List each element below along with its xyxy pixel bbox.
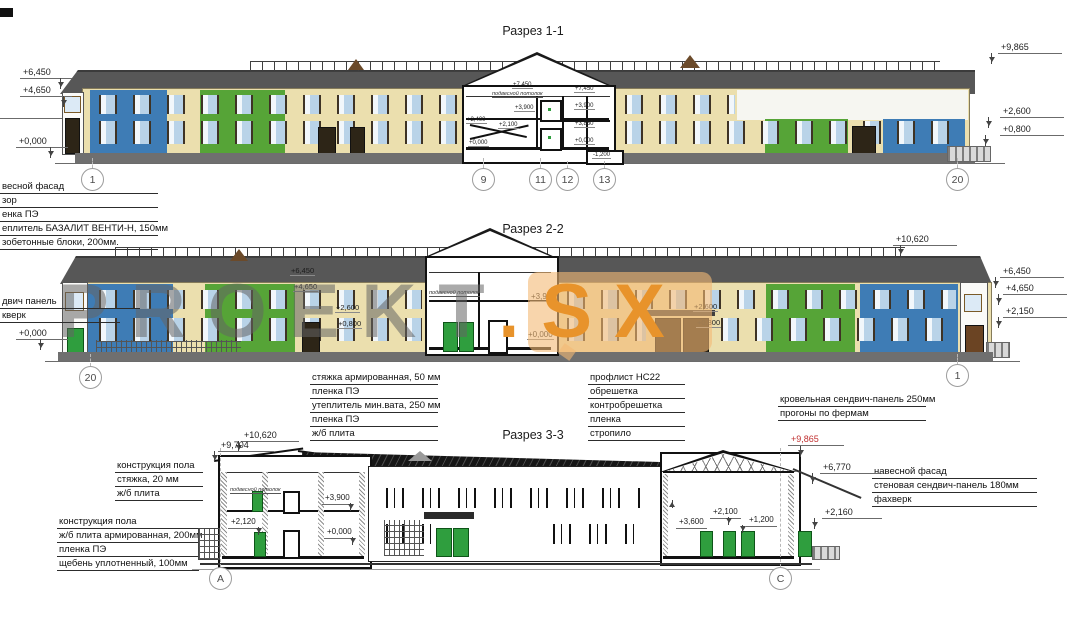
s2-wall-legend: двич панель кверк: [0, 296, 140, 324]
s3-ground-line-thin: [192, 569, 820, 570]
s1-elev-arrow: [988, 117, 989, 128]
s2-elev-mark: +6,450: [1000, 266, 1064, 278]
legend-line: навесной фасад: [872, 466, 1037, 479]
watermark-suffix: .SX: [498, 269, 687, 354]
s1-cut-mark: +0,000: [468, 140, 489, 147]
legend-line: фахверк: [872, 494, 1037, 507]
s1-cut-mark: +2,400: [466, 117, 487, 124]
legend-line: енка ПЭ: [0, 209, 158, 222]
legend-line: кровельная сендвич-панель 250мм: [778, 394, 926, 407]
s3-axis-leader: [220, 448, 221, 567]
legend-line: пленка ПЭ: [310, 414, 438, 427]
s1-axis-bubble: 9: [472, 168, 495, 191]
s3-elev-mark: +6,770: [820, 462, 880, 474]
s3-windows-upper: [378, 488, 640, 508]
s1-cut-mark: +7,450: [512, 82, 533, 89]
s3-entry-green-door: [453, 528, 469, 557]
s1-axis-leader: [957, 158, 958, 168]
s1-cut-mark: +0,000: [574, 138, 595, 145]
s2-right-end-window: [964, 294, 982, 312]
s1-shaft-wall: [536, 96, 538, 147]
s3-roof-legend: профлист НС22 обрешетка контробрешетка п…: [588, 372, 685, 442]
s1-windows-lower-left: [92, 121, 458, 144]
s3-elev-mark: +2,160: [822, 507, 882, 519]
s2-elev-mark: +4,650: [1003, 283, 1067, 295]
s1-windows-lower-right: [618, 121, 965, 144]
legend-line: стяжка армированная, 50 мм: [310, 372, 438, 385]
legend-line: зор: [0, 195, 158, 208]
s3-elev-arrow: [814, 518, 815, 529]
s1-cut-door-dot: [548, 108, 551, 111]
s3-hall-wall-hatch: [663, 474, 668, 556]
s3-mark-arrow: [672, 500, 673, 508]
s3-ceiling-label: подвесной потолок: [230, 487, 281, 494]
s3-axis-leader: [780, 448, 781, 567]
s3-left-ceiling-line: [222, 472, 364, 473]
s3-hall-green-door: [798, 531, 812, 557]
s1-cut-mark: +3,900: [574, 103, 595, 110]
legend-line: ж/б плита: [310, 428, 438, 441]
s1-windows-upper-mid: [618, 95, 735, 114]
s2-elev-arrow: [998, 294, 999, 305]
s3-cut-door: [283, 491, 300, 514]
s1-axis-leader: [567, 161, 568, 168]
legend-line: ж/б плита: [115, 488, 203, 501]
s3-mark-arrow: [728, 517, 729, 525]
s1-axis-bubble: 11: [529, 168, 552, 191]
s1-wall-legend: весной фасад зор енка ПЭ еплитель БАЗАЛИ…: [0, 181, 158, 251]
s2-axis-leader: [90, 354, 91, 366]
legend-line: двич панель: [0, 296, 140, 309]
s3-partition-hatch: [318, 472, 324, 556]
s3-left-wall-hatch: [221, 472, 227, 556]
s3-right-wall-hatch: [359, 472, 365, 556]
s1-axis-leader: [540, 158, 541, 168]
s3-hall-green-door: [741, 531, 755, 557]
legend-line: обрешетка: [588, 386, 685, 399]
s3-top-arrow: [214, 451, 215, 462]
watermark: PROEKT.SX: [58, 281, 687, 343]
s1-axis-leader: [483, 158, 484, 168]
s1-cut-door-dot: [548, 136, 551, 139]
s1-white-band-right: [737, 90, 968, 120]
s1-windows-upper-left: [92, 95, 458, 114]
s3-roof-panel-legend: кровельная сендвич-панель 250мм прогоны …: [778, 394, 926, 422]
corner-mark: [0, 8, 13, 17]
legend-line: конструкция пола: [57, 516, 199, 529]
s1-left-end-window: [64, 96, 81, 113]
s1-elev-arrow: [50, 147, 51, 158]
drawing-sheet: Разрез 1-1 подвесной потолок +7,450 +3,9…: [0, 0, 1073, 617]
s1-axis-leader: [92, 158, 93, 168]
s1-elev-arrow: [985, 135, 986, 146]
legend-line: стропило: [588, 428, 685, 441]
s3-roof-vent-icon: [408, 451, 432, 461]
s2-elev-arrow: [998, 317, 999, 328]
s1-cut-door: [540, 128, 562, 151]
legend-line: еплитель БАЗАЛИТ ВЕНТИ-Н, 150мм: [0, 223, 158, 236]
s1-exterior-stair: [947, 146, 991, 162]
s1-entry-door-right: [852, 126, 876, 155]
s2-axis-leader: [957, 354, 958, 364]
s1-entry-door: [318, 127, 336, 155]
s3-hall-green-door: [700, 531, 713, 557]
s2-elev-arrow: [995, 277, 996, 288]
s1-elev-mark: +6,450: [20, 67, 72, 79]
legend-line: утеплитель мин.вата, 250 мм: [310, 400, 438, 413]
s3-hall-wall-hatch: [788, 474, 794, 556]
s1-elev-mark: +2,600: [1000, 106, 1064, 118]
s3-mark-arrow: [350, 503, 351, 511]
s1-elev-arrow: [63, 96, 64, 107]
s2-elev-arrow: [40, 339, 41, 350]
s1-cut-mark: +3,900: [514, 105, 535, 112]
s3-ground-line: [200, 563, 812, 565]
legend-line: прогоны по фермам: [778, 408, 926, 421]
legend-line: пленка ПЭ: [57, 544, 199, 557]
legend-line: пленка: [588, 414, 685, 427]
s3-top-mark: +9,704: [218, 440, 274, 452]
legend-line: кверк: [0, 310, 120, 323]
s1-cut-ceiling-label: подвесной потолок: [492, 91, 543, 98]
s3-elev-arrow: [812, 473, 813, 484]
s2-axis-bubble: 1: [946, 364, 969, 387]
section3-title: Разрез 3-3: [468, 428, 598, 442]
s3-entry-green-door: [436, 528, 452, 557]
s1-cut-mark: +2,100: [498, 122, 519, 129]
s2-axis-bubble: 20: [79, 366, 102, 389]
s3-axis-bubble: С: [769, 567, 792, 590]
s1-roof-gable-icon: [680, 55, 700, 68]
s1-elev-mark: +0,800: [1000, 124, 1064, 136]
legend-line: весной фасад: [0, 181, 158, 194]
s3-elev-arrow: [800, 446, 801, 457]
legend-line: стеновая сендвич-панель 180мм: [872, 480, 1037, 493]
legend-line: щебень уплотненный, 100мм: [57, 558, 199, 571]
s1-elev-mark: +0,000: [16, 136, 68, 148]
s1-elev-mark: +9,865: [998, 42, 1062, 54]
legend-line: контробрешетка: [588, 400, 685, 413]
s3-wall-right-legend: навесной фасад стеновая сендвич-панель 1…: [872, 466, 1037, 508]
s1-axis-bubble: 13: [593, 168, 616, 191]
s3-mark-arrow: [258, 527, 259, 535]
s3-floor-upper-legend: конструкция пола стяжка, 20 мм ж/б плита: [115, 460, 203, 502]
s3-cut-door: [283, 530, 300, 559]
s3-hall-exterior-stair: [812, 546, 840, 560]
s1-cut-mark: +3,850: [574, 121, 595, 128]
s1-axis-leader: [604, 161, 605, 168]
s3-floor-ground-legend: конструкция пола ж/б плита армированная,…: [57, 516, 199, 572]
legend-line: стяжка, 20 мм: [115, 474, 203, 487]
s1-cut-mark-pit: -1,200: [592, 152, 611, 159]
s2-ground-line: [45, 361, 1020, 362]
s1-roof-gable-icon: [348, 59, 364, 70]
s1-elev-arrow: [991, 53, 992, 64]
s1-cut-door: [540, 100, 562, 122]
s3-axis-bubble: А: [209, 567, 232, 590]
s3-elev-mark-red: +9,865: [788, 434, 844, 446]
s2-roof-gable-icon: [230, 249, 248, 261]
legend-line: конструкция пола: [115, 460, 203, 473]
s2-right-end-door: [965, 325, 984, 354]
s3-hall-green-door: [723, 531, 736, 557]
s3-truss-bottom-chord: [663, 471, 794, 473]
s1-entry-door: [350, 127, 365, 155]
s3-mark-arrow: [352, 537, 353, 545]
s3-entry-railing: [384, 520, 424, 556]
s3-mark-arrow: [742, 525, 743, 533]
s1-axis-bubble: 12: [556, 168, 579, 191]
s2-elev-mark: +2,150: [1003, 306, 1067, 318]
legend-line: пленка ПЭ: [310, 386, 438, 399]
s3-roof-slab-legend: стяжка армированная, 50 мм пленка ПЭ уте…: [310, 372, 438, 442]
s3-green-door: [252, 491, 263, 512]
s1-elev-mark: +4,650: [20, 85, 72, 97]
s1-dim-line: [0, 118, 62, 119]
s1-cut-mark: +7,450: [574, 86, 595, 93]
s3-hall-mark: +3,600: [676, 517, 707, 529]
s3-entry-canopy: [424, 512, 474, 519]
s3-windows-lower-right: [545, 524, 640, 544]
legend-line: ж/б плита армированная, 200мм: [57, 530, 199, 543]
s2-windows-lower-right: [714, 318, 956, 341]
legend-line: профлист НС22: [588, 372, 685, 385]
s3-mark: +2,120: [228, 517, 259, 529]
s3-left-exterior-stair: [198, 528, 220, 560]
s2-elev-arrow: [900, 245, 901, 256]
s3-hall-mark: +1,200: [746, 515, 777, 527]
s1-axis-bubble: 20: [946, 168, 969, 191]
s2-elev-mark: +10,620: [893, 234, 957, 246]
section1-title: Разрез 1-1: [468, 24, 598, 38]
